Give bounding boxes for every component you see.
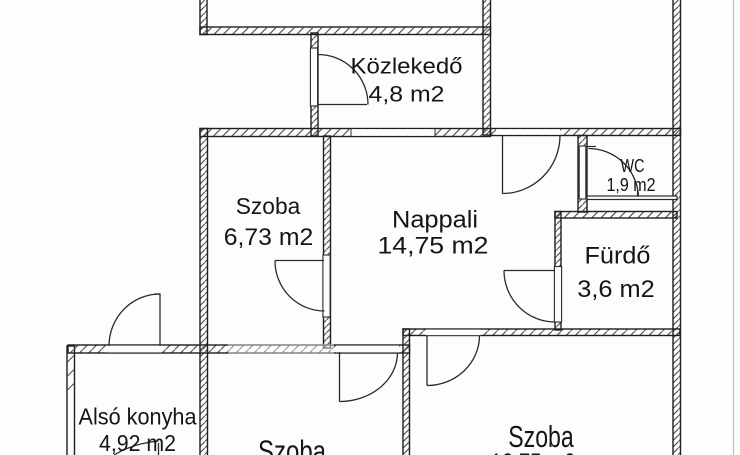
svg-text:14,75 m2: 14,75 m2 xyxy=(378,233,489,260)
svg-text:12,75 m2: 12,75 m2 xyxy=(491,448,576,455)
svg-text:Szoba: Szoba xyxy=(236,193,301,219)
svg-text:6,73 m2: 6,73 m2 xyxy=(224,224,314,251)
svg-text:Fürdő: Fürdő xyxy=(585,243,651,270)
svg-text:3,6 m2: 3,6 m2 xyxy=(577,276,655,303)
svg-text:4,92 m2: 4,92 m2 xyxy=(99,430,176,455)
svg-text:1,9 m2: 1,9 m2 xyxy=(607,174,656,195)
svg-text:WC: WC xyxy=(621,155,645,176)
svg-text:Közlekedő: Közlekedő xyxy=(351,54,463,79)
svg-text:Alsó konyha: Alsó konyha xyxy=(79,404,197,430)
svg-text:Nappali: Nappali xyxy=(392,207,478,234)
svg-text:Szoba: Szoba xyxy=(258,435,326,455)
svg-text:4,8 m2: 4,8 m2 xyxy=(369,82,445,107)
